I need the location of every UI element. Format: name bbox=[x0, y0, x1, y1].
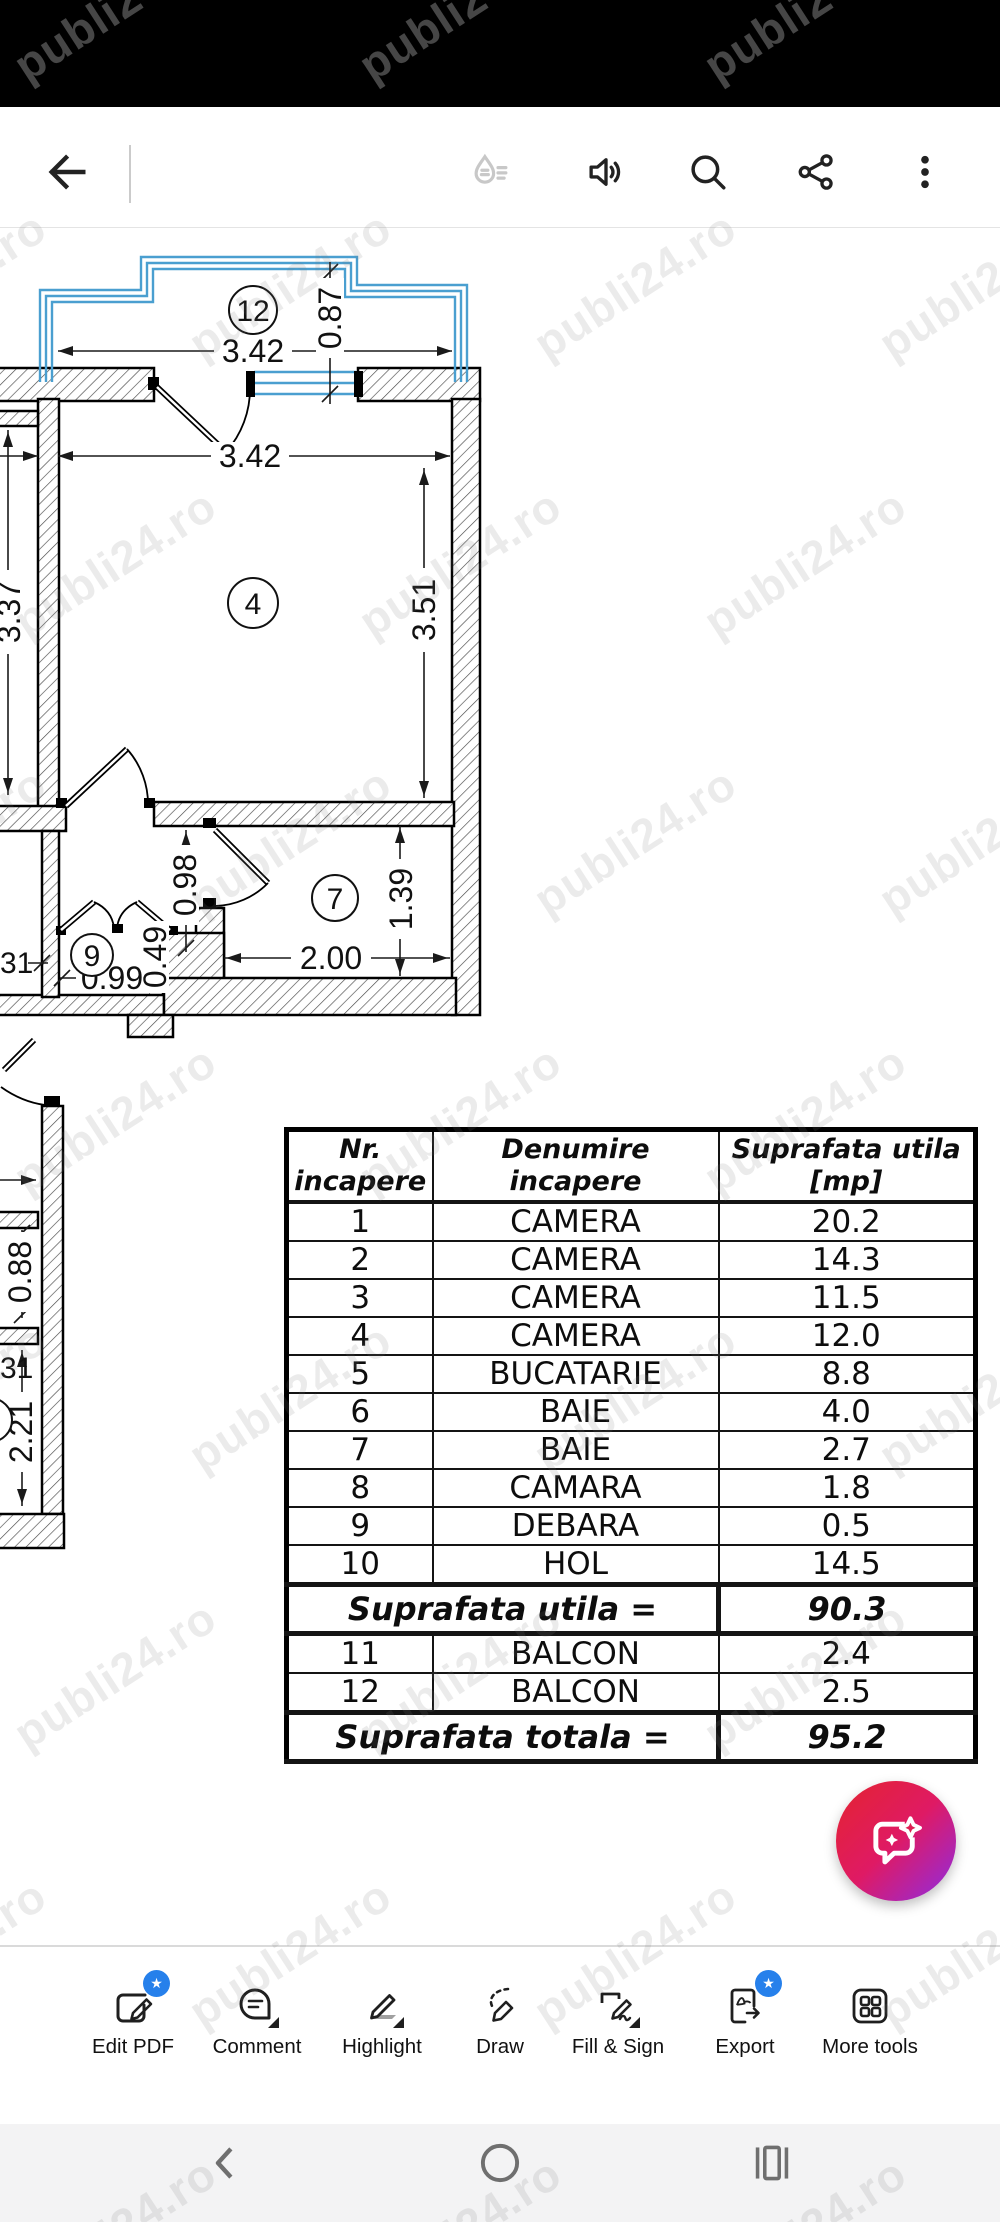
bt-label: Highlight bbox=[317, 2035, 447, 2059]
home-circle-icon[interactable] bbox=[478, 2141, 522, 2185]
liquid-mode-icon[interactable] bbox=[470, 151, 512, 193]
dim-bath-depth: 1.39 bbox=[383, 868, 419, 930]
table-row: 6BAIE4.0 bbox=[287, 1393, 976, 1431]
comment-icon bbox=[233, 1982, 281, 2030]
dim-balcony-width: 3.42 bbox=[222, 333, 284, 369]
table-row: 11BALCON2.4 bbox=[287, 1634, 976, 1674]
table-row: 7BAIE2.7 bbox=[287, 1431, 976, 1469]
bt-label: Edit PDF bbox=[68, 2035, 198, 2059]
fill-sign-button[interactable]: Fill & Sign bbox=[553, 1982, 683, 2059]
dim-room-height: 3.51 bbox=[406, 579, 442, 641]
subtotal-row: Suprafata utila = 90.3 bbox=[287, 1585, 976, 1634]
dim-left-window: 0.88 bbox=[2, 1241, 38, 1303]
total-value: 95.2 bbox=[719, 1713, 976, 1762]
room-number-bath: 7 bbox=[327, 883, 344, 916]
draw-button[interactable]: Draw bbox=[435, 1982, 565, 2059]
comment-button[interactable]: Comment bbox=[192, 1982, 322, 2059]
total-label: Suprafata totala = bbox=[287, 1713, 719, 1762]
export-button[interactable]: ★ Export bbox=[680, 1982, 810, 2059]
room-number-debara: 9 bbox=[84, 940, 101, 973]
table-row: 1CAMERA20.2 bbox=[287, 1202, 976, 1241]
search-icon[interactable] bbox=[687, 151, 729, 193]
draw-icon bbox=[476, 1982, 524, 2030]
premium-star-badge: ★ bbox=[143, 1970, 170, 1997]
table-row: 5BUCATARIE8.8 bbox=[287, 1355, 976, 1393]
submenu-indicator bbox=[393, 2017, 404, 2028]
header-nr: Nr. incapere bbox=[287, 1130, 433, 1203]
table-row: 10HOL14.5 bbox=[287, 1545, 976, 1585]
table-row: 12BALCON2.5 bbox=[287, 1673, 976, 1713]
more-tools-button[interactable]: More tools bbox=[805, 1982, 935, 2059]
back-arrow-icon[interactable] bbox=[44, 149, 90, 195]
dim-closet-depth: 0.49 bbox=[137, 926, 173, 988]
bt-label: Draw bbox=[435, 2035, 565, 2059]
dim-room-width: 3.42 bbox=[219, 438, 281, 474]
area-table: Nr. incapere Denumire incapere Suprafata… bbox=[284, 1127, 978, 1764]
share-icon[interactable] bbox=[795, 151, 837, 193]
read-aloud-icon[interactable] bbox=[585, 151, 627, 193]
edit-pdf-button[interactable]: ★ Edit PDF bbox=[68, 1982, 198, 2059]
room-number-balcony: 12 bbox=[236, 295, 269, 328]
overflow-menu-icon[interactable] bbox=[904, 151, 946, 193]
fill-sign-icon bbox=[594, 1982, 642, 2030]
highlight-icon bbox=[358, 1982, 406, 2030]
highlight-button[interactable]: Highlight bbox=[317, 1982, 447, 2059]
back-chevron-icon[interactable] bbox=[209, 2145, 245, 2181]
dim-left-cut-top: 31 bbox=[0, 947, 33, 980]
ai-assistant-fab[interactable] bbox=[836, 1781, 956, 1901]
table-header-row: Nr. incapere Denumire incapere Suprafata… bbox=[287, 1130, 976, 1203]
header-denumire: Denumire incapere bbox=[433, 1130, 719, 1203]
dim-left-cut-bottom: 31 bbox=[0, 1352, 33, 1385]
header-suprafata: Suprafata utila [mp] bbox=[719, 1130, 976, 1203]
subtotal-value: 90.3 bbox=[719, 1585, 976, 1634]
dim-left-room-height: 3.37 bbox=[0, 581, 27, 643]
ai-assistant-chat-icon bbox=[865, 1810, 927, 1872]
recents-icon[interactable] bbox=[752, 2143, 792, 2183]
premium-star-badge: ★ bbox=[755, 1970, 782, 1997]
table-row: 3CAMERA11.5 bbox=[287, 1279, 976, 1317]
room-number-camera: 4 bbox=[245, 588, 262, 621]
dim-balcony-depth: 0.87 bbox=[312, 287, 348, 349]
bt-label: Export bbox=[680, 2035, 810, 2059]
dim-bath-width: 2.00 bbox=[300, 940, 362, 976]
bt-label: More tools bbox=[805, 2035, 935, 2059]
more-tools-icon bbox=[846, 1982, 894, 2030]
bt-label: Fill & Sign bbox=[553, 2035, 683, 2059]
title-divider bbox=[129, 145, 131, 203]
bt-label: Comment bbox=[192, 2035, 322, 2059]
subtotal-label: Suprafata utila = bbox=[287, 1585, 719, 1634]
table-row: 2CAMERA14.3 bbox=[287, 1241, 976, 1279]
table-row: 8CAMARA1.8 bbox=[287, 1469, 976, 1507]
table-row: 4CAMERA12.0 bbox=[287, 1317, 976, 1355]
total-row: Suprafata totala = 95.2 bbox=[287, 1713, 976, 1762]
table-row: 9DEBARA0.5 bbox=[287, 1507, 976, 1545]
dim-hall-opening: 0.98 bbox=[167, 854, 203, 916]
